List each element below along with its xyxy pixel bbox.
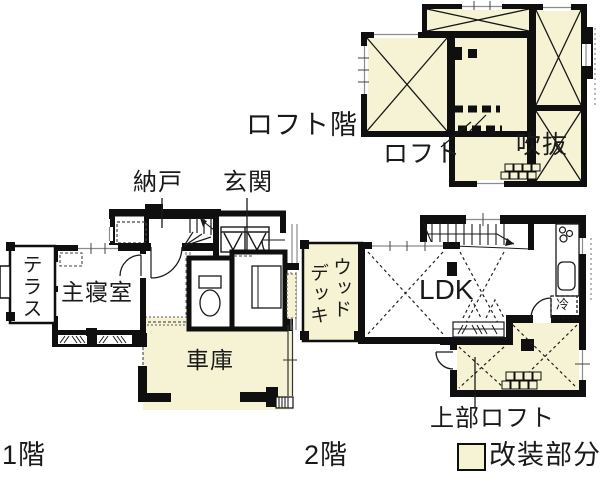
balustrade-hatch [453,322,504,337]
label-storage: 納戸 [133,171,183,195]
first-floor-title: 1階 [2,442,46,469]
loft-steps-icon [501,164,540,179]
label-void: 吹抜 [516,133,568,158]
label-loft: ロフト [383,142,461,167]
first-floor-plan [0,198,299,410]
legend-label: 改装部分 [489,442,600,469]
label-upper-loft: 上部ロフト [430,407,555,431]
hall-door-arc [151,247,182,278]
stairs-1f [184,218,214,246]
label-ldk: LDK [419,276,473,304]
floor-plan-page: ロフト階 ロフト 吹抜 納戸 玄関 テラス 主寝室 車庫 1階 ウッド デッキ … [0,0,600,479]
label-garage: 車庫 [186,349,234,372]
legend-swatch [458,444,485,470]
label-refrigerator: 冷 [556,298,569,311]
upper-loft-steps-icon [502,372,541,389]
loft-floor-title: ロフト階 [246,112,358,139]
label-master-bedroom: 主寝室 [61,281,133,304]
label-terrace: テラス [20,254,40,320]
label-wood-deck-1: ウッド [331,257,350,320]
second-floor-title: 2階 [304,442,348,469]
garage-steps-hatch [276,397,293,408]
label-wood-deck-2: デッキ [308,263,327,326]
label-entrance: 玄関 [223,171,273,195]
loft-room-center [452,35,530,134]
toilet-icon [199,276,221,316]
sink-icon [558,262,575,290]
shoe-cabinet-icon [221,227,269,252]
